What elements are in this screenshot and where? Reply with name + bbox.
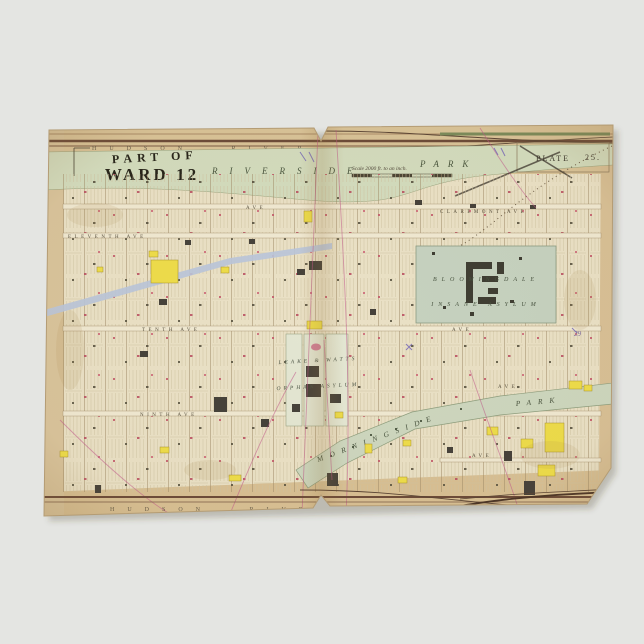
- product-canvas: HUDSON RIVER RIVERSIDE PARK PART OF WARD…: [0, 0, 644, 644]
- edge-vignette: [44, 125, 613, 516]
- map-sheet: HUDSON RIVER RIVERSIDE PARK PART OF WARD…: [44, 125, 618, 522]
